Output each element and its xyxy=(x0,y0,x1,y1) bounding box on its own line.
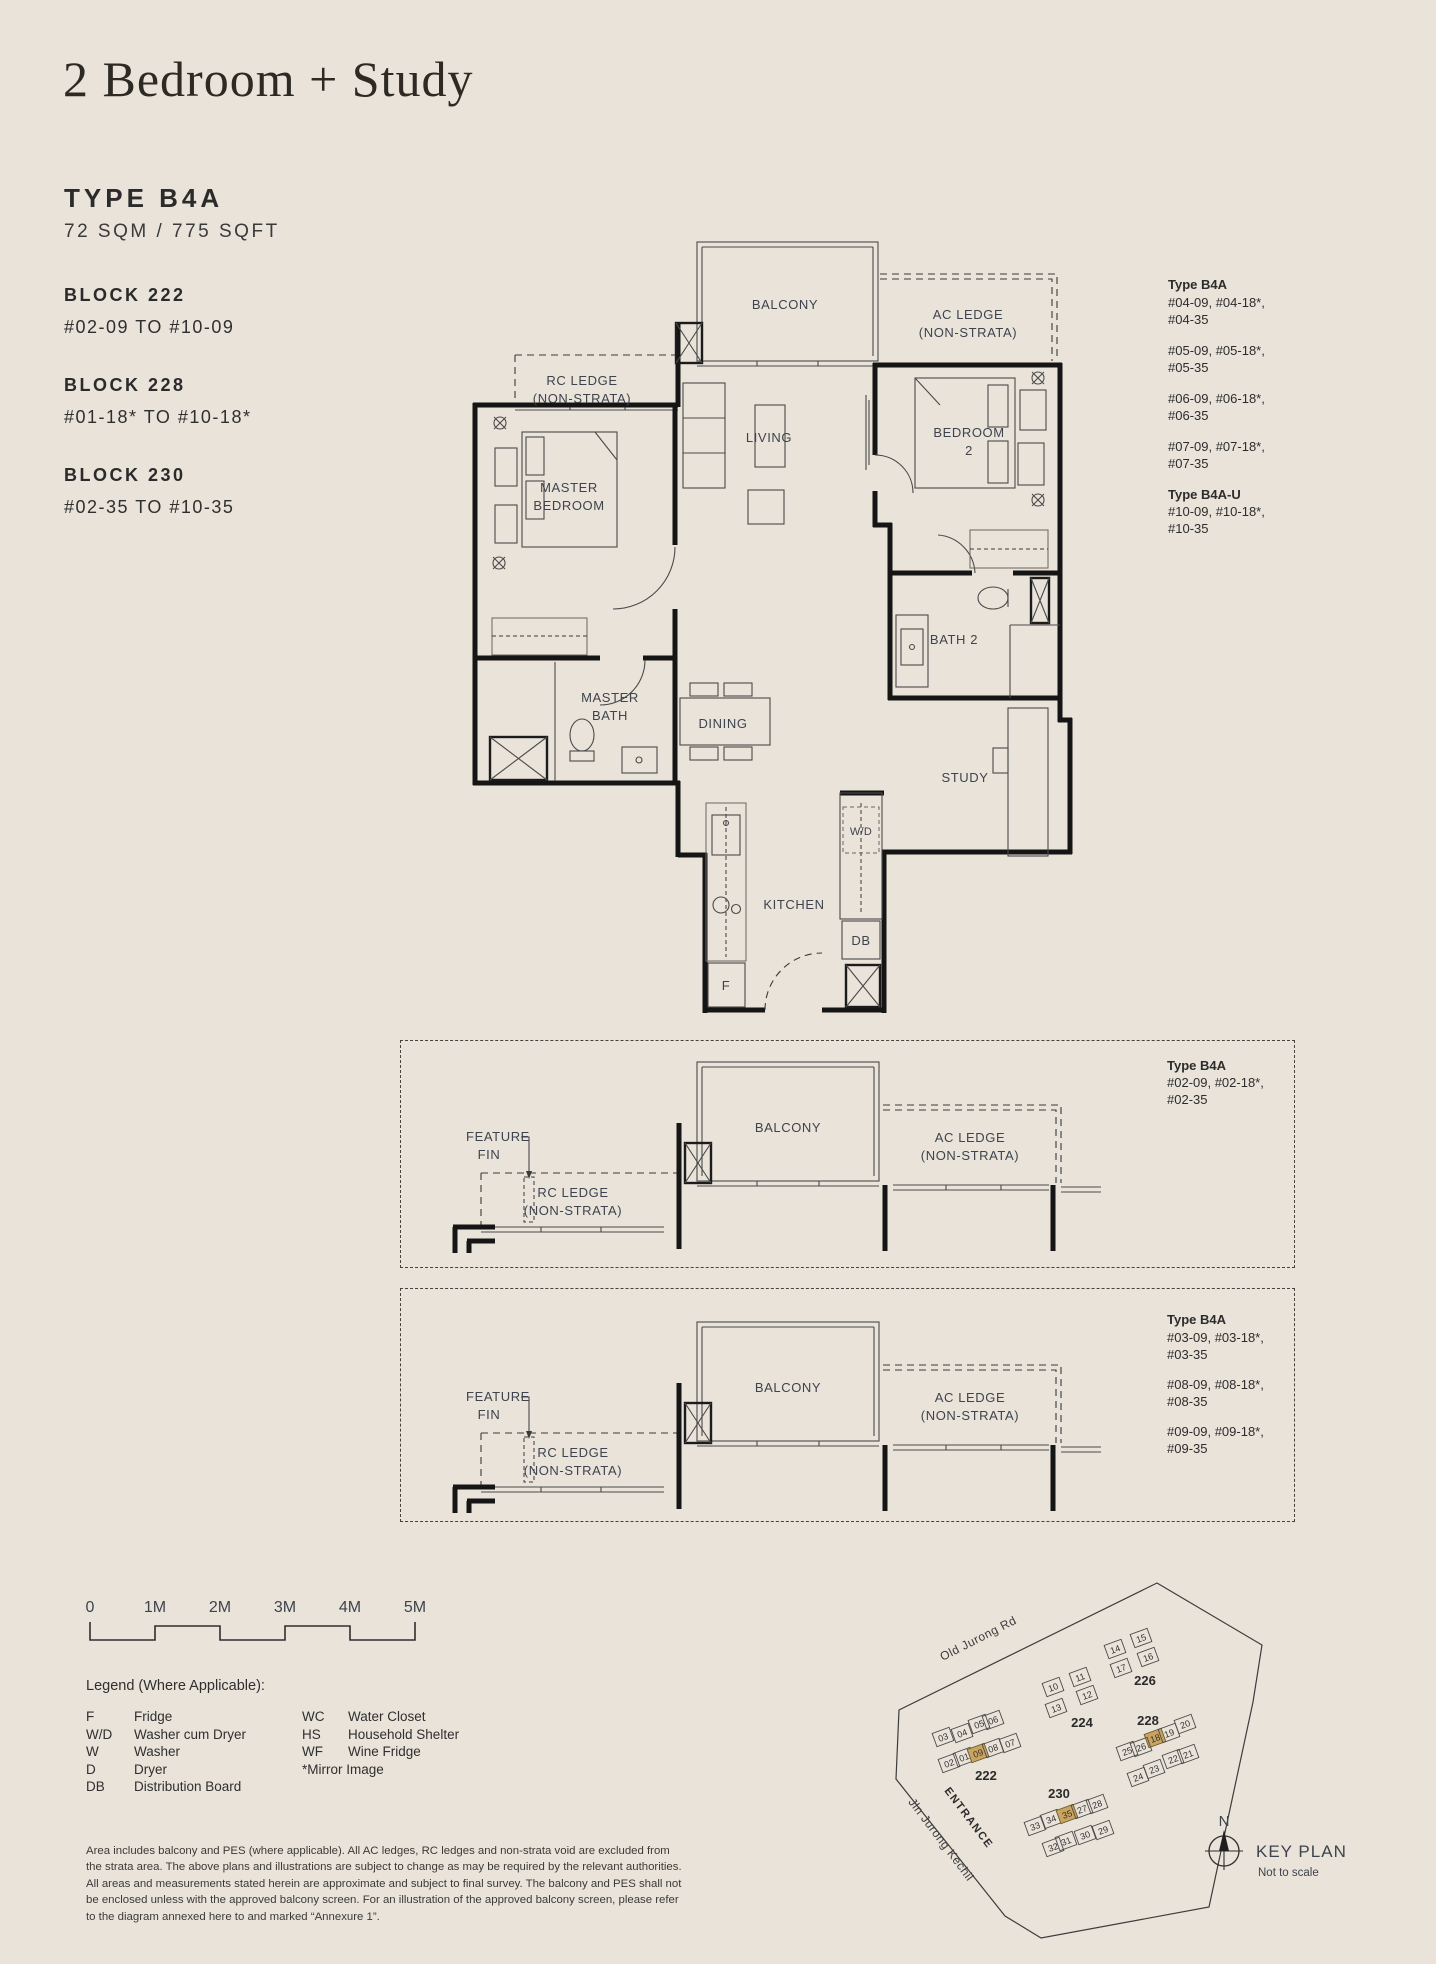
detail-plan-1: FEATURE FIN RC LEDGE (NON-STRATA) BALCON… xyxy=(401,1041,1294,1267)
feature-fin-label: FEATURE xyxy=(466,1389,530,1404)
block-name: BLOCK 222 xyxy=(64,285,234,306)
block-label-222: 222 xyxy=(975,1768,997,1783)
ac-ledge-label: AC LEDGE xyxy=(935,1390,1006,1405)
unit-cell: 19 xyxy=(1163,1727,1176,1740)
unit-cell: 32 xyxy=(1047,1841,1060,1854)
stack-line: #09-35 xyxy=(1167,1440,1264,1457)
balcony-label: BALCONY xyxy=(755,1120,821,1135)
unit-cell: 17 xyxy=(1115,1662,1128,1675)
rc-ledge-label: RC LEDGE xyxy=(537,1445,608,1460)
block-range: #02-09 TO #10-09 xyxy=(64,317,234,338)
stack-line: #07-35 xyxy=(1168,455,1265,472)
lower-floor-detail-box-2: FEATURE FIN RC LEDGE (NON-STRATA) BALCON… xyxy=(400,1288,1295,1522)
fridge-label: F xyxy=(722,978,731,993)
unit-cell: 14 xyxy=(1109,1643,1122,1656)
scale-tick-label: 0 xyxy=(86,1599,95,1616)
unit-cell: 07 xyxy=(1004,1737,1017,1750)
legend: Legend (Where Applicable): F Fridge WC W… xyxy=(86,1678,459,1796)
stack-line: #08-09, #08-18*, xyxy=(1167,1376,1264,1393)
detail1-stack-list: Type B4A #02-09, #02-18*, #02-35 xyxy=(1167,1057,1264,1108)
rc-ledge-label: RC LEDGE xyxy=(546,373,617,388)
unit-cell: 02 xyxy=(943,1757,956,1770)
unit-cell: 22 xyxy=(1167,1753,1180,1766)
bath2-label: BATH 2 xyxy=(930,632,978,647)
stack-line: #05-09, #05-18*, xyxy=(1168,342,1265,359)
unit-cell: 33 xyxy=(1029,1820,1042,1833)
bedroom2-label2: 2 xyxy=(965,443,973,458)
unit-cell: 34 xyxy=(1045,1813,1058,1826)
study-label: STUDY xyxy=(941,770,988,785)
rc-ledge-label: RC LEDGE xyxy=(537,1185,608,1200)
block-230-heading: BLOCK 230 #02-35 TO #10-35 xyxy=(64,465,234,518)
stack-title: Type B4A xyxy=(1167,1311,1264,1328)
detail-plan-2: FEATURE FIN RC LEDGE (NON-STRATA) BALCON… xyxy=(401,1289,1294,1521)
stack-title: Type B4A xyxy=(1167,1057,1264,1074)
stack-line: #08-35 xyxy=(1167,1393,1264,1410)
kitchen-label: KITCHEN xyxy=(763,897,824,912)
scale-tick-label: 4M xyxy=(339,1599,361,1616)
bedroom2-label: BEDROOM xyxy=(933,425,1004,440)
stack-line: #03-35 xyxy=(1167,1346,1264,1363)
unit-cell: 29 xyxy=(1097,1824,1110,1837)
living-label: LIVING xyxy=(746,430,792,445)
north-arrow-icon xyxy=(1219,1830,1229,1851)
disclaimer-line: to the diagram annexed here to and marke… xyxy=(86,1909,682,1925)
legend-value: Distribution Board xyxy=(134,1778,302,1796)
unit-cell: 20 xyxy=(1179,1718,1192,1731)
unit-cell: 10 xyxy=(1047,1681,1060,1694)
master-bath-label: MASTER xyxy=(581,690,639,705)
stack-line: #09-09, #09-18*, xyxy=(1167,1423,1264,1440)
legend-value: Wine Fridge xyxy=(348,1743,459,1761)
unit-cell: 06 xyxy=(987,1714,1000,1727)
block-range: #02-35 TO #10-35 xyxy=(64,497,234,518)
cluster-224: 10 11 12 13 224 xyxy=(1042,1667,1098,1730)
rc-ledge-label2: (NON-STRATA) xyxy=(524,1203,622,1218)
unit-cell: 31 xyxy=(1060,1835,1073,1848)
unit-cell: 15 xyxy=(1135,1632,1148,1645)
legend-value: Dryer xyxy=(134,1761,302,1779)
disclaimer-line: the strata area. The above plans and ill… xyxy=(86,1859,682,1875)
stack-line: #04-09, #04-18*, xyxy=(1168,294,1265,311)
legend-key: W xyxy=(86,1743,134,1761)
legend-value: Fridge xyxy=(134,1708,302,1726)
master-bath-label2: BATH xyxy=(592,708,628,723)
db-label: DB xyxy=(851,933,870,948)
legend-value: Washer xyxy=(134,1743,302,1761)
unit-cell: 23 xyxy=(1148,1763,1161,1776)
legend-key: D xyxy=(86,1761,134,1779)
legend-key: WC xyxy=(302,1708,348,1726)
disclaimer: Area includes balcony and PES (where app… xyxy=(86,1843,682,1925)
balcony-label: BALCONY xyxy=(752,297,818,312)
scale-bar: 0 1M 2M 3M 4M 5M xyxy=(68,1592,448,1662)
balcony-label: BALCONY xyxy=(755,1380,821,1395)
unit-cell: 08 xyxy=(987,1742,1000,1755)
legend-mirror-note: *Mirror Image xyxy=(302,1761,459,1779)
compass-icon: N xyxy=(1205,1813,1243,1870)
ac-ledge-label: AC LEDGE xyxy=(933,307,1004,322)
block-name: BLOCK 228 xyxy=(64,375,251,396)
stack-line: #07-09, #07-18*, xyxy=(1168,438,1265,455)
block-range: #01-18* TO #10-18* xyxy=(64,407,251,428)
unit-cell: 04 xyxy=(956,1727,969,1740)
furniture xyxy=(492,378,1060,1010)
legend-key: WF xyxy=(302,1743,348,1761)
stack-line: #06-09, #06-18*, xyxy=(1168,390,1265,407)
legend-value: Household Shelter xyxy=(348,1726,459,1744)
rc-ledge-label2: (NON-STRATA) xyxy=(524,1463,622,1478)
feature-fin-label: FEATURE xyxy=(466,1129,530,1144)
ac-ledge-label2: (NON-STRATA) xyxy=(921,1148,1019,1163)
keyplan-subtitle: Not to scale xyxy=(1258,1867,1319,1879)
block-222-heading: BLOCK 222 #02-09 TO #10-09 xyxy=(64,285,234,338)
north-label: N xyxy=(1219,1813,1230,1830)
cluster-226: 14 15 16 17 226 xyxy=(1104,1628,1159,1688)
washer-dryer-label: W/D xyxy=(850,826,872,838)
unit-cell: 30 xyxy=(1079,1829,1092,1842)
disclaimer-line: All areas and measurements stated herein… xyxy=(86,1876,682,1892)
rc-ledge-label2: (NON-STRATA) xyxy=(533,391,631,406)
unit-area-label: 72 SQM / 775 SQFT xyxy=(64,221,280,243)
dining-label: DINING xyxy=(698,716,747,731)
unit-cell: 24 xyxy=(1132,1771,1145,1784)
cluster-230: 230 33 34 35 27 28 32 31 30 29 xyxy=(1024,1786,1114,1857)
scale-tick-label: 5M xyxy=(404,1599,426,1616)
legend-key: W/D xyxy=(86,1726,134,1744)
ac-ledge-label2: (NON-STRATA) xyxy=(919,325,1017,340)
unit-cell: 26 xyxy=(1135,1741,1148,1754)
master-bedroom-label: MASTER xyxy=(540,480,598,495)
block-label-224: 224 xyxy=(1071,1715,1093,1730)
scale-tick-label: 3M xyxy=(274,1599,296,1616)
legend-key: DB xyxy=(86,1778,134,1796)
stack-line: #10-09, #10-18*, xyxy=(1168,503,1265,520)
detail2-stack-list: Type B4A #03-09, #03-18*, #03-35 #08-09,… xyxy=(1167,1311,1264,1457)
unit-cell: 13 xyxy=(1050,1702,1063,1715)
block-name: BLOCK 230 xyxy=(64,465,234,486)
unit-cell: 16 xyxy=(1142,1651,1155,1664)
unit-cell: 11 xyxy=(1074,1671,1086,1684)
key-plan: Old Jurong Rd Jln Jurong Kechil ENTRANCE… xyxy=(880,1570,1436,1964)
stack-line: #05-35 xyxy=(1168,359,1265,376)
feature-fin-label2: FIN xyxy=(478,1147,501,1162)
page-title: 2 Bedroom + Study xyxy=(63,50,473,108)
legend-key: HS xyxy=(302,1726,348,1744)
main-floor-plan: BALCONY AC LEDGE (NON-STRATA) RC LEDGE (… xyxy=(460,215,1140,1045)
legend-key: F xyxy=(86,1708,134,1726)
legend-value: Washer cum Dryer xyxy=(134,1726,302,1744)
stack-line: #10-35 xyxy=(1168,520,1265,537)
ac-ledge-label: AC LEDGE xyxy=(935,1130,1006,1145)
block-label-226: 226 xyxy=(1134,1673,1156,1688)
stack-line: #03-09, #03-18*, xyxy=(1167,1329,1264,1346)
keyplan-title: KEY PLAN xyxy=(1256,1842,1347,1861)
block-228-heading: BLOCK 228 #01-18* TO #10-18* xyxy=(64,375,251,428)
block-label-228: 228 xyxy=(1137,1713,1159,1728)
legend-value: Water Closet xyxy=(348,1708,459,1726)
ac-ledge-label2: (NON-STRATA) xyxy=(921,1408,1019,1423)
road-label-old-jurong: Old Jurong Rd xyxy=(938,1613,1019,1664)
stack-line: #02-09, #02-18*, xyxy=(1167,1074,1264,1091)
unit-cell: 28 xyxy=(1091,1798,1104,1811)
stack-title: Type B4A xyxy=(1168,276,1265,293)
master-bedroom-label2: BEDROOM xyxy=(533,498,604,513)
disclaimer-line: Area includes balcony and PES (where app… xyxy=(86,1843,682,1859)
cluster-222: 03 04 05 06 02 01 09 08 07 222 xyxy=(932,1710,1021,1783)
stack-line: #06-35 xyxy=(1168,407,1265,424)
stack-line: #02-35 xyxy=(1167,1091,1264,1108)
disclaimer-line: be enclosed unless with the approved bal… xyxy=(86,1892,682,1908)
stack-title-u: Type B4A-U xyxy=(1168,486,1265,503)
scale-tick-label: 1M xyxy=(144,1599,166,1616)
unit-type-label: TYPE B4A xyxy=(64,183,223,214)
block-label-230: 230 xyxy=(1048,1786,1070,1801)
unit-cell: 03 xyxy=(937,1731,950,1744)
scale-tick-label: 2M xyxy=(209,1599,231,1616)
main-stack-list: Type B4A #04-09, #04-18*, #04-35 #05-09,… xyxy=(1168,276,1265,537)
feature-fin-label2: FIN xyxy=(478,1407,501,1422)
legend-title: Legend (Where Applicable): xyxy=(86,1678,459,1694)
stack-line: #04-35 xyxy=(1168,311,1265,328)
lower-floor-detail-box-1: FEATURE FIN RC LEDGE (NON-STRATA) BALCON… xyxy=(400,1040,1295,1268)
cluster-228: 228 18 19 20 25 26 24 23 22 21 xyxy=(1116,1713,1199,1787)
unit-cell: 27 xyxy=(1076,1803,1089,1816)
unit-cell: 21 xyxy=(1182,1748,1195,1761)
unit-cell: 12 xyxy=(1081,1689,1094,1702)
